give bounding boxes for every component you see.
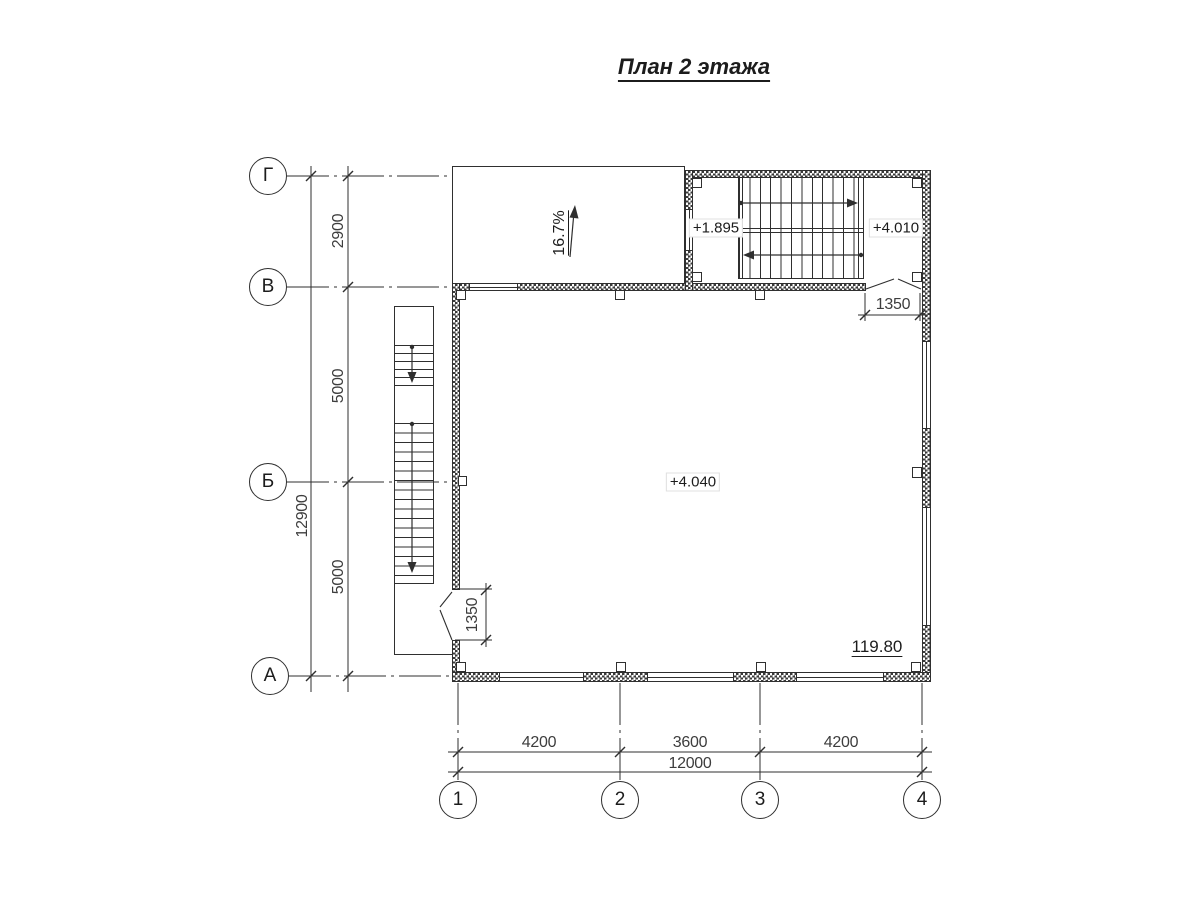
axis-col-1-label: 1 [453,789,464,811]
door-swings [440,279,921,640]
dim-bottom-23: 3600 [673,734,707,752]
column-row-v-3 [755,290,765,300]
wall-east-upper [922,170,931,342]
axis-row-b-label: Б [262,471,274,493]
column-row-a-4 [911,662,921,672]
column-row-a-2 [616,662,626,672]
dim-stairwell-door: 1350 [874,296,912,314]
dim-left-gv: 2900 [330,214,348,248]
window-row-a-3 [797,672,883,682]
axis-row-a: А [251,657,289,695]
axis-row-g-label: Г [263,165,273,187]
axis-row-a-label: А [264,665,277,687]
column-row-v-2 [615,290,625,300]
window-east-2 [922,508,931,625]
axis-col-2: 2 [601,781,639,819]
window-row-v-west [470,283,517,291]
window-east-1 [922,342,931,428]
axis-col-1: 1 [439,781,477,819]
column-stairwell-sw [692,272,702,282]
left-stair-upper-flight [395,345,433,386]
dim-left-door: 1350 [464,598,482,632]
elevation-landing-mid: +1.895 [689,219,743,238]
axis-row-v: В [249,268,287,306]
wall-row-a-seg1 [452,672,500,682]
room-area-label: 119.80 [852,637,903,657]
axis-col-3-label: 3 [755,789,766,811]
column-row-b-east [912,467,922,478]
window-row-a-1 [500,672,583,682]
axis-col-3: 3 [741,781,779,819]
wall-row-a-seg2 [583,672,648,682]
wall-east-middle [922,428,931,508]
dim-bottom-34: 4200 [824,734,858,752]
column-row-v-1 [456,290,466,300]
window-row-a-2 [648,672,733,682]
axis-row-b: Б [249,463,287,501]
axis-col-4-label: 4 [917,789,928,811]
drawing-title: План 2 этажа [618,54,770,80]
axis-col-2-label: 2 [615,789,626,811]
wall-row-a-seg3 [733,672,797,682]
dim-left-ba: 5000 [330,560,348,594]
axis-col-4: 4 [903,781,941,819]
axis-row-v-label: В [262,276,275,298]
stairwell-landing-line-1 [738,228,864,229]
wall-stairwell-top [685,170,931,178]
elevation-floor: +4.040 [666,473,720,492]
lower-left-room-south-wall [394,654,452,655]
wall-stairwell-left-lower [685,250,693,291]
left-stair-lower-flight [395,423,433,576]
column-stairwell-ne [912,178,922,188]
linework-overlay [0,0,1200,900]
wall-stairwell-left-upper [685,170,693,210]
ramp-slope-label: 16.7% [551,210,569,255]
column-stairwell-se [912,272,922,282]
stairwell-landing-line-2 [738,232,864,233]
column-row-a-3 [756,662,766,672]
dim-left-vb: 5000 [330,369,348,403]
wall-row-a-seg4 [883,672,931,682]
floor-plan-drawing: Г В Б А 1 2 3 4 План 2 этажа 12900 2900 … [0,0,1200,900]
dim-left-total: 12900 [294,495,312,538]
dim-bottom-12: 4200 [522,734,556,752]
elevation-landing-top: +4.010 [869,219,923,238]
axis-row-g: Г [249,157,287,195]
column-row-a-1 [456,662,466,672]
column-stairwell-nw [692,178,702,188]
wall-west-upper [452,283,460,590]
dim-bottom-total: 12000 [669,755,712,773]
lower-left-room-west-wall [394,584,395,655]
column-row-b-west [458,476,467,486]
